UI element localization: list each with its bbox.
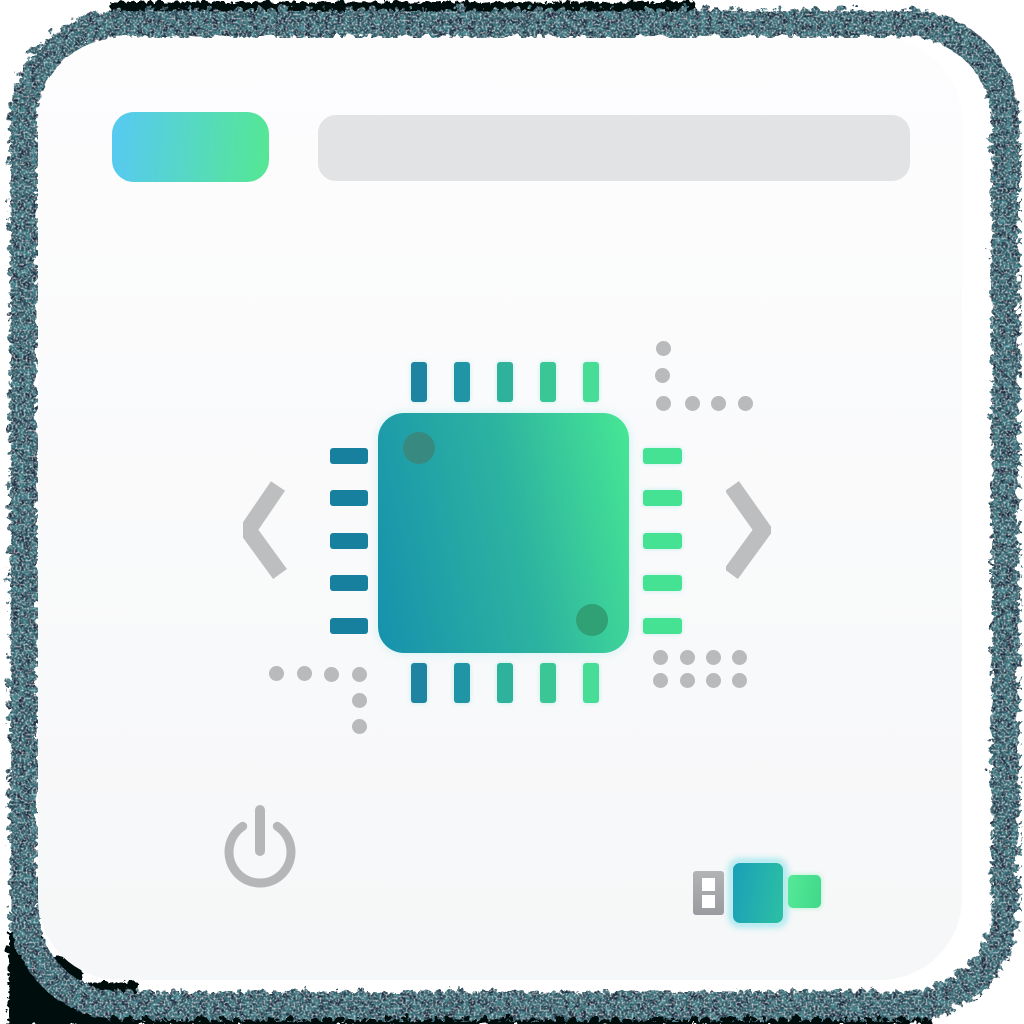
chip-pin-left <box>330 618 368 634</box>
chevron-left-stroke <box>248 486 280 574</box>
chip-pin-right <box>643 490 682 506</box>
chip-pin-left <box>330 533 368 549</box>
power-icon[interactable] <box>215 802 305 902</box>
dots-bottom-left <box>297 666 312 681</box>
usb-cap <box>788 875 821 908</box>
device-card <box>38 38 962 980</box>
usb-plug-hole <box>702 895 715 908</box>
dots-bottom-left <box>352 693 367 708</box>
chevron-left-icon[interactable] <box>243 478 288 583</box>
dots-top-right <box>656 396 671 411</box>
chip-pin-right <box>643 618 682 634</box>
dots-bottom-right <box>706 673 721 688</box>
dots-bottom-right <box>732 673 747 688</box>
dots-top-right <box>738 396 753 411</box>
chip-pin-bottom <box>540 663 556 703</box>
chip-pin-top <box>497 362 513 402</box>
usb-plug-hole <box>702 878 715 891</box>
dots-top-right <box>711 396 726 411</box>
chip-pin-top <box>583 362 599 402</box>
chip-pin-bottom <box>583 663 599 703</box>
usb-plug <box>693 871 724 915</box>
chip-illustration <box>38 38 962 980</box>
dots-bottom-right <box>680 673 695 688</box>
chevron-right-icon[interactable] <box>726 478 771 583</box>
chip-corner-dot-top-left <box>403 432 435 464</box>
chip-corner-dot-bottom-right <box>576 604 608 636</box>
chip-pin-left <box>330 448 368 464</box>
chip-pin-right <box>643 575 682 591</box>
dots-top-right <box>685 396 700 411</box>
chevron-right-stroke <box>731 486 763 574</box>
chip-pin-top <box>540 362 556 402</box>
dots-bottom-right <box>680 650 695 665</box>
usb-body <box>731 861 785 925</box>
dots-bottom-right <box>732 650 747 665</box>
chip-pin-bottom <box>454 663 470 703</box>
chip-pin-right <box>643 533 682 549</box>
app-canvas <box>0 0 1024 1024</box>
dots-bottom-left <box>352 719 367 734</box>
chip-pin-bottom <box>411 663 427 703</box>
chip-pin-bottom <box>497 663 513 703</box>
dots-bottom-right <box>653 673 668 688</box>
chip-pin-right <box>643 448 682 464</box>
dots-bottom-right <box>653 650 668 665</box>
usb-drive-icon <box>693 823 823 928</box>
dots-top-right <box>655 368 670 383</box>
chip-pin-left <box>330 575 368 591</box>
dots-bottom-left <box>324 667 339 682</box>
dots-bottom-left <box>352 667 367 682</box>
dots-bottom-right <box>706 650 721 665</box>
chip-pin-left <box>330 490 368 506</box>
dots-top-right <box>656 341 671 356</box>
dots-bottom-left <box>269 666 284 681</box>
chip-pin-top <box>454 362 470 402</box>
chip-pin-top <box>411 362 427 402</box>
